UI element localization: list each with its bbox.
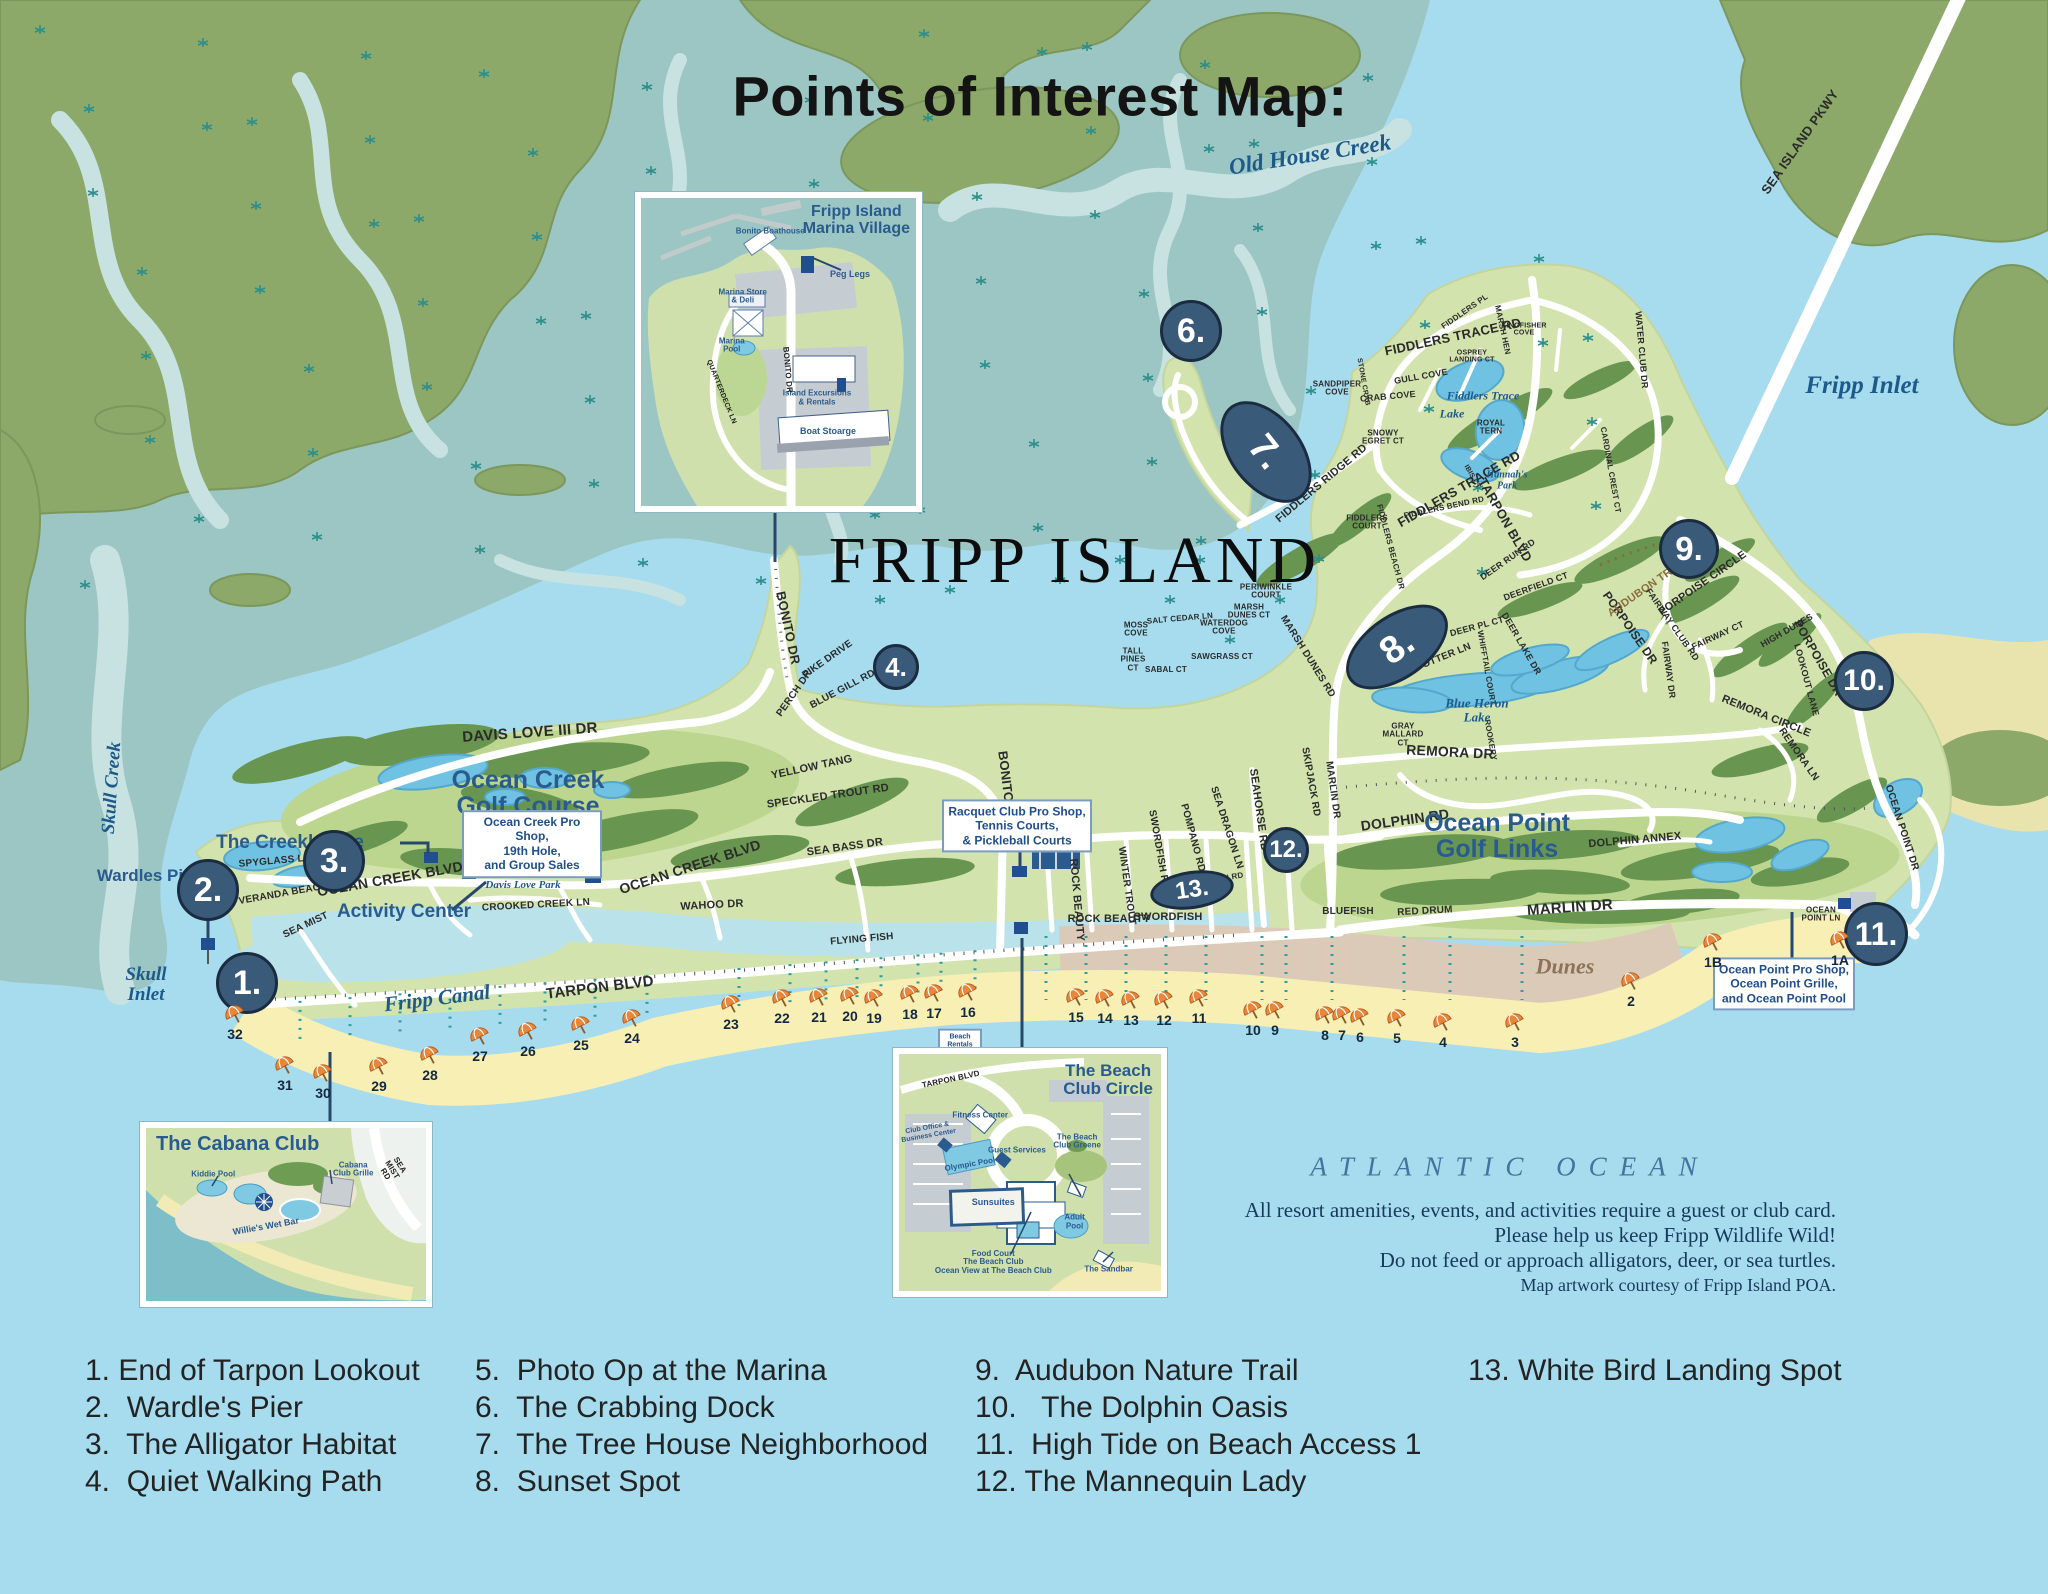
inset-cabana-club: The Cabana Club Kiddie PoolCabana Club G…	[140, 1122, 432, 1307]
beach-access-number: 14	[1097, 1010, 1113, 1026]
beach-umbrella-11: 11	[1186, 988, 1212, 1028]
beach-access-number: 7	[1338, 1027, 1346, 1043]
legend-item: 12. The Mannequin Lady	[975, 1463, 1421, 1500]
info-box: Racquet Club Pro Shop,Tennis Courts,& Pi…	[942, 799, 1092, 852]
page-title: Points of Interest Map:	[732, 64, 1347, 129]
beach-umbrella-26: 26	[515, 1021, 541, 1061]
legend-item: 11. High Tide on Beach Access 1	[975, 1426, 1421, 1463]
beach-umbrella-1B: 1B	[1700, 932, 1726, 972]
poi-marker-3[interactable]: 3.	[303, 830, 365, 892]
umbrella-icon	[1432, 1012, 1454, 1034]
road-label: OCEAN POINT LN	[1802, 907, 1841, 924]
info-box-line: and Ocean Point Pool	[1719, 991, 1849, 1005]
umbrella-icon	[1504, 1012, 1526, 1034]
info-box-line: Ocean Creek Pro Shop,	[468, 815, 596, 844]
road-label: SAWGRASS CT	[1191, 653, 1253, 661]
inset-label: Marina Store & Deli	[719, 288, 767, 305]
beach-access-number: 13	[1123, 1012, 1139, 1028]
beach-access-number: 11	[1192, 1010, 1207, 1026]
inset-label: Boat Stoarge	[800, 427, 856, 437]
beach-access-number: 28	[422, 1067, 438, 1083]
inset-label: Cabana Club Grille	[333, 1161, 373, 1178]
poi-marker-12[interactable]: 12.	[1263, 827, 1309, 873]
beach-access-number: 23	[723, 1016, 739, 1032]
inset-label: Marina Pool	[719, 337, 745, 354]
inset-title: Fripp Island Marina Village	[803, 204, 910, 238]
legend-column-1: 1. End of Tarpon Lookout2. Wardle's Pier…	[85, 1352, 420, 1500]
road-label: GRAY MALLARD CT	[1383, 722, 1424, 747]
beach-access-number: 5	[1393, 1030, 1401, 1046]
beach-umbrella-21: 21	[806, 987, 832, 1027]
inset-label: The Sandbar	[1084, 1265, 1132, 1274]
road-label: WATERDOG COVE	[1200, 620, 1248, 637]
beach-access-number: 22	[774, 1010, 790, 1026]
place-label: Activity Center	[337, 902, 471, 922]
beach-access-number: 24	[624, 1030, 640, 1046]
beach-access-number: 3	[1511, 1034, 1519, 1050]
beach-umbrella-14: 14	[1092, 988, 1118, 1028]
inset-label: Guest Services	[988, 1147, 1046, 1156]
beach-access-number: 31	[277, 1077, 293, 1093]
water-label: Fiddlers Trace	[1447, 390, 1520, 403]
legend-item: 8. Sunset Spot	[475, 1463, 928, 1500]
beach-access-number: 29	[371, 1078, 387, 1094]
road-label: MOSS COVE	[1124, 622, 1148, 639]
inset-label: Peg Legs	[830, 270, 870, 280]
legend-item: 3. The Alligator Habitat	[85, 1426, 420, 1463]
water-label: Davis Love Park	[485, 880, 560, 892]
beach-access-number: 27	[472, 1048, 488, 1064]
beach-access-number: 16	[960, 1004, 976, 1020]
beach-access-number: 8	[1321, 1027, 1329, 1043]
beach-umbrella-1A: 1A	[1827, 930, 1853, 970]
road-label: OSPREY LANDING CT	[1449, 350, 1494, 365]
road-label: TALL PINES CT	[1120, 647, 1145, 672]
beach-umbrella-22: 22	[769, 988, 795, 1028]
atlantic-ocean-label: ATLANTIC OCEAN	[1310, 1152, 1709, 1183]
inset-label: Adult Pool	[1064, 1214, 1084, 1231]
info-box-line: & Pickleball Courts	[948, 833, 1086, 847]
beach-umbrella-9: 9	[1262, 1000, 1288, 1040]
beach-umbrella-13: 13	[1118, 990, 1144, 1030]
legend-item: 1. End of Tarpon Lookout	[85, 1352, 420, 1389]
beach-umbrella-31: 31	[272, 1055, 298, 1095]
beach-access-number: 18	[902, 1006, 918, 1022]
beach-umbrella-17: 17	[921, 983, 947, 1023]
info-box-line: Ocean Point Grille,	[1719, 977, 1849, 991]
beach-umbrella-12: 12	[1151, 990, 1177, 1030]
road-label: ROYAL TERN	[1477, 420, 1505, 437]
beach-access-number: 17	[926, 1005, 942, 1021]
beach-access-number: 10	[1245, 1022, 1261, 1038]
legend-item: 5. Photo Op at the Marina	[475, 1352, 928, 1389]
umbrella-icon	[1094, 988, 1116, 1010]
beach-umbrella-2: 2	[1618, 971, 1644, 1011]
road-label: PERIWINKLE COURT	[1240, 584, 1292, 601]
beach-umbrella-5: 5	[1384, 1008, 1410, 1048]
water-label: Skull Inlet	[125, 965, 166, 1005]
beach-access-number: 26	[520, 1043, 536, 1059]
umbrella-icon	[224, 1004, 246, 1026]
legend-item: 6. The Crabbing Dock	[475, 1389, 928, 1426]
road-label: MARSH DUNES CT	[1228, 604, 1271, 621]
umbrella-icon	[312, 1063, 334, 1085]
info-box-line: Beach	[944, 1034, 976, 1042]
beach-umbrella-4: 4	[1430, 1012, 1456, 1052]
beach-access-number: 1B	[1704, 954, 1722, 970]
beach-access-number: 4	[1439, 1034, 1447, 1050]
legend-item: 7. The Tree House Neighborhood	[475, 1426, 928, 1463]
inset-label: The Beach Club Greene	[1053, 1133, 1101, 1150]
place-label: Ocean Point Golf Links	[1424, 810, 1570, 863]
poi-marker-6[interactable]: 6.	[1160, 300, 1222, 362]
info-box: Ocean Creek Pro Shop,19th Hole,and Group…	[462, 810, 602, 878]
marina-inset-art	[641, 198, 916, 506]
umbrella-icon	[957, 982, 979, 1004]
beach-umbrella-28: 28	[417, 1045, 443, 1085]
legend-column-3: 9. Audubon Nature Trail10. The Dolphin O…	[975, 1352, 1421, 1500]
umbrella-icon	[1153, 990, 1175, 1012]
info-box-line: Tennis Courts,	[948, 819, 1086, 833]
inset-label: Fitness Center	[952, 1111, 1008, 1120]
road-label: KINGFISHER COVE	[1501, 323, 1546, 338]
poi-marker-11[interactable]: 11.	[1844, 902, 1908, 966]
road-label: SWORDFISH	[1133, 912, 1202, 924]
umbrella-icon	[808, 987, 830, 1009]
inset-marina-village: Fripp Island Marina Village Bonito Boath…	[635, 192, 922, 512]
umbrella-icon	[1065, 987, 1087, 1009]
umbrella-icon	[1264, 1000, 1286, 1022]
beach-access-number: 19	[866, 1010, 882, 1026]
beach-umbrella-30: 30	[310, 1063, 336, 1103]
poi-marker-10[interactable]: 10.	[1834, 651, 1894, 711]
beach-access-number: 32	[227, 1026, 243, 1042]
umbrella-icon	[863, 988, 885, 1010]
poi-marker-2[interactable]: 2.	[177, 859, 239, 921]
road-label: BLUEFISH	[1322, 907, 1374, 918]
info-box-line: 19th Hole,	[468, 844, 596, 858]
umbrella-icon	[1620, 971, 1642, 993]
umbrella-icon	[1349, 1007, 1371, 1029]
umbrella-icon	[1188, 988, 1210, 1010]
beach-access-number: 1A	[1831, 952, 1849, 968]
beach-access-number: 30	[315, 1085, 331, 1101]
beach-umbrella-6: 6	[1347, 1007, 1373, 1047]
poi-marker-9[interactable]: 9.	[1659, 519, 1719, 579]
beach-access-number: 15	[1068, 1009, 1084, 1025]
water-label: Dunes	[1536, 954, 1595, 977]
beach-access-number: 21	[811, 1009, 827, 1025]
beach-umbrella-24: 24	[619, 1008, 645, 1048]
legend-item: 13. White Bird Landing Spot	[1468, 1352, 1842, 1389]
beach-umbrella-27: 27	[467, 1026, 493, 1066]
umbrella-icon	[570, 1015, 592, 1037]
beach-access-number: 20	[842, 1008, 858, 1024]
beach-umbrella-32: 32	[222, 1004, 248, 1044]
umbrella-icon	[469, 1026, 491, 1048]
road-label: SANDPIPER COVE	[1313, 381, 1361, 398]
beach-access-number: 2	[1627, 993, 1635, 1009]
inset-label: Sunsuites	[972, 1198, 1015, 1208]
beach-umbrella-29: 29	[366, 1056, 392, 1096]
umbrella-icon	[899, 984, 921, 1006]
inset-label: Bonito Boathouse	[736, 228, 805, 237]
water-label: Lake	[1440, 408, 1465, 421]
umbrella-icon	[517, 1021, 539, 1043]
legend-item: 10. The Dolphin Oasis	[975, 1389, 1421, 1426]
umbrella-icon	[419, 1045, 441, 1067]
beach-umbrella-3: 3	[1502, 1012, 1528, 1052]
beach-umbrella-23: 23	[718, 994, 744, 1034]
beach-umbrella-20: 20	[837, 986, 863, 1026]
beach-umbrella-15: 15	[1063, 987, 1089, 1027]
inset-label: Kiddie Pool	[191, 1170, 235, 1179]
umbrella-icon	[1386, 1008, 1408, 1030]
umbrella-icon	[1702, 932, 1724, 954]
legend-column-4: 13. White Bird Landing Spot	[1468, 1352, 1842, 1389]
legend-item: 4. Quiet Walking Path	[85, 1463, 420, 1500]
water-label: Hannah's Park	[1486, 471, 1527, 492]
umbrella-icon	[1829, 930, 1851, 952]
fripp-island-poi-map: Points of Interest Map: FRIPP ISLAND ATL…	[0, 0, 2048, 1594]
legend-item: 2. Wardle's Pier	[85, 1389, 420, 1426]
umbrella-icon	[720, 994, 742, 1016]
inset-label: Food Court The Beach Club Ocean View at …	[935, 1250, 1052, 1276]
umbrella-icon	[368, 1056, 390, 1078]
water-label: Blue Heron Lake	[1445, 696, 1508, 723]
umbrella-icon	[839, 986, 861, 1008]
beach-umbrella-25: 25	[568, 1015, 594, 1055]
beach-access-number: 9	[1271, 1022, 1279, 1038]
umbrella-icon	[1120, 990, 1142, 1012]
beach-umbrella-16: 16	[955, 982, 981, 1022]
umbrella-icon	[771, 988, 793, 1010]
beach-umbrella-19: 19	[861, 988, 887, 1028]
road-label: SNOWY EGRET CT	[1362, 430, 1404, 447]
road-label: SABAL CT	[1145, 666, 1187, 674]
info-box-line: and Group Sales	[468, 858, 596, 872]
umbrella-icon	[1242, 1000, 1264, 1022]
inset-title: The Beach Club Circle	[1063, 1062, 1153, 1098]
legend-item: 9. Audubon Nature Trail	[975, 1352, 1421, 1389]
water-label: Fripp Inlet	[1805, 373, 1918, 399]
inset-title: The Cabana Club	[156, 1134, 319, 1155]
beach-access-number: 12	[1156, 1012, 1172, 1028]
umbrella-icon	[923, 983, 945, 1005]
info-box-line: Racquet Club Pro Shop,	[948, 804, 1086, 818]
inset-beach-club-circle: The Beach Club Circle TARPON BLVDFitness…	[893, 1048, 1167, 1297]
beach-access-number: 25	[573, 1037, 589, 1053]
umbrella-icon	[621, 1008, 643, 1030]
umbrella-icon	[274, 1055, 296, 1077]
beach-access-number: 6	[1356, 1029, 1364, 1045]
poi-marker-4[interactable]: 4.	[873, 644, 919, 690]
beach-umbrella-18: 18	[897, 984, 923, 1024]
legend-column-2: 5. Photo Op at the Marina6. The Crabbing…	[475, 1352, 928, 1500]
